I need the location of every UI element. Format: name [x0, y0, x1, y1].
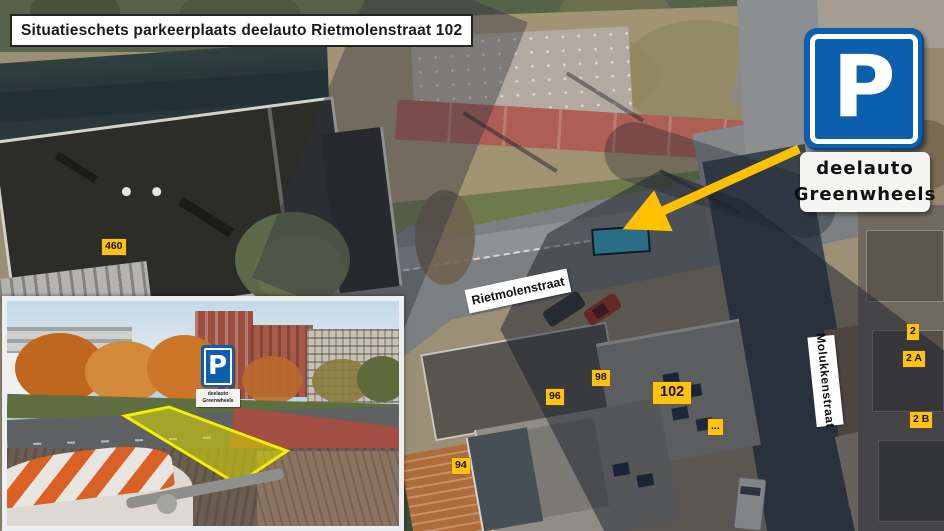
map-title: Situatieschets parkeerplaats deelauto Ri…	[10, 14, 473, 47]
situational-sketch-map: Situatieschets parkeerplaats deelauto Ri…	[0, 0, 944, 531]
parking-sign: P	[804, 28, 924, 150]
inset-parking-sign: P	[201, 345, 234, 387]
house-number-2a: 2 A	[903, 351, 925, 367]
house-number-96: 96	[546, 389, 564, 405]
sign-subtitle-line2: Greenwheels	[794, 182, 937, 208]
street-photo-inset: P deelauto Greenwheels	[2, 296, 404, 531]
house-number-2: 2	[907, 324, 919, 340]
map-title-text: Situatieschets parkeerplaats deelauto Ri…	[21, 22, 462, 40]
sign-subtitle-line1: deelauto	[816, 156, 913, 182]
house-number-460: 460	[102, 239, 126, 255]
parking-sign-subtitle: deelauto Greenwheels	[800, 152, 930, 212]
inset-parking-sign-subtitle: deelauto Greenwheels	[196, 389, 240, 407]
parking-sign-p-icon: P	[804, 28, 924, 150]
house-number-98: 98	[592, 370, 610, 386]
house-number-2b: 2 B	[910, 412, 932, 428]
house-number-ellipsis: ...	[708, 419, 723, 435]
inset-parking-sign-p-icon: P	[201, 345, 234, 387]
house-number-102: 102	[653, 382, 691, 404]
house-number-94: 94	[452, 458, 470, 474]
parking-spot-marker	[591, 225, 651, 256]
street-photo: P deelauto Greenwheels	[7, 301, 399, 526]
